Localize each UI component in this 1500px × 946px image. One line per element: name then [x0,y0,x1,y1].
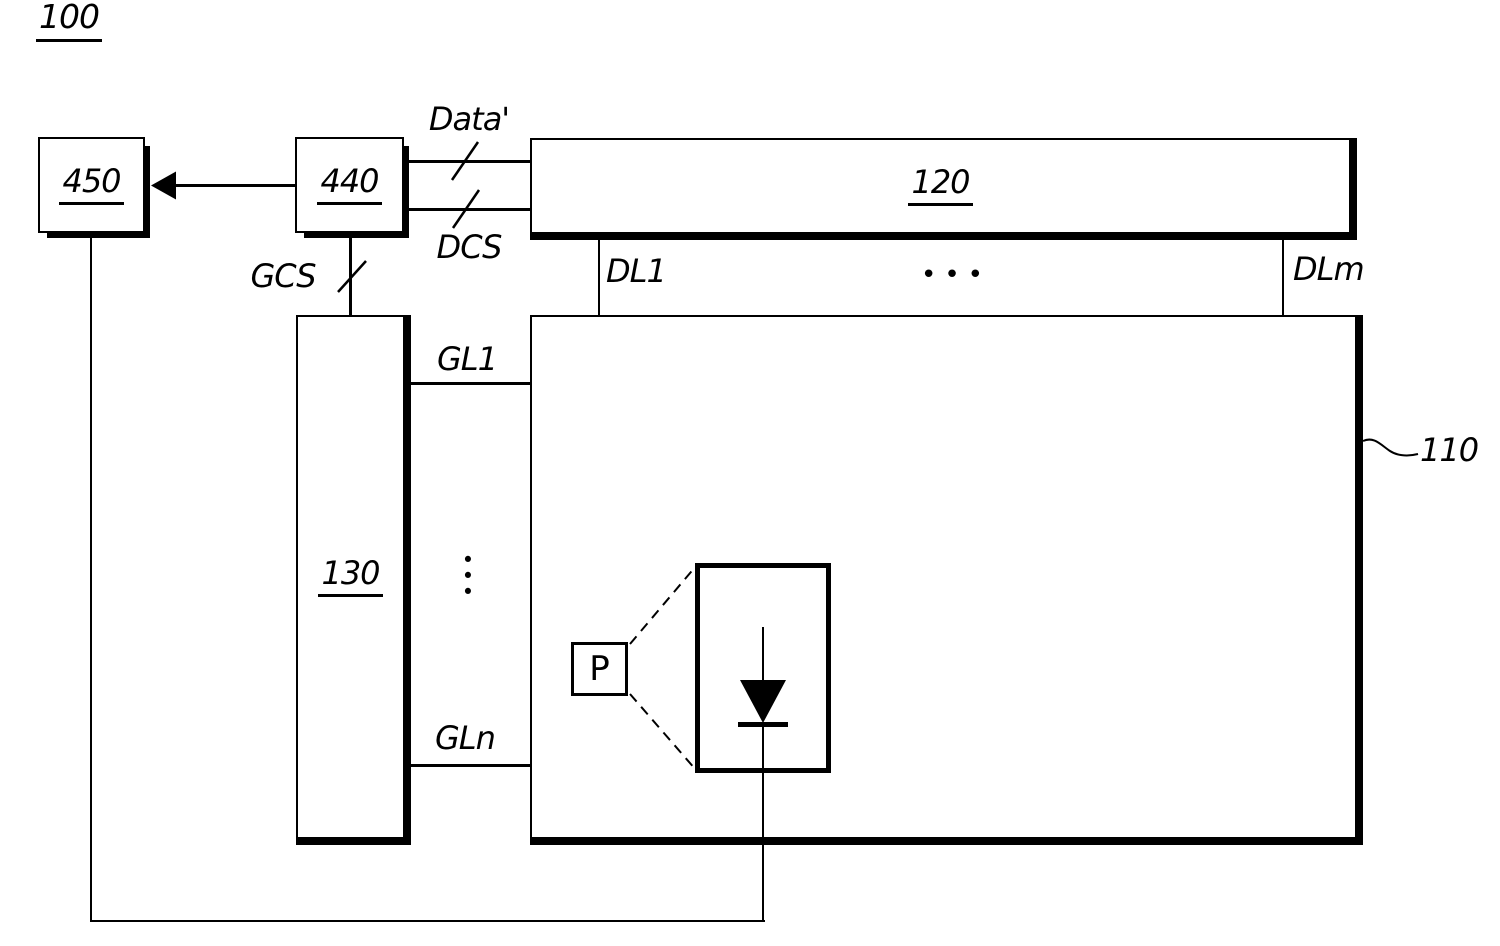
pointer-squiggle-icon [1363,440,1418,456]
data-driver-120-box: 120 [530,138,1357,240]
figure-ref-number: 100 [36,0,102,42]
gcs-signal-label: GCS [233,259,333,294]
gate-driver-130-box: 130 [296,315,411,845]
pixel-cathode-wire [762,724,765,922]
feedback-wire-vertical [90,234,93,922]
diode-anode-stem [762,627,765,683]
data-signal-label: Data' [419,102,519,137]
figure-ref-label: 100 [36,0,102,35]
block-130-label: 130 [318,557,382,597]
vertical-ellipsis: • • • [460,552,476,600]
block-440: 440 [295,137,404,233]
block-450-label: 450 [59,165,123,205]
block-450: 450 [38,137,145,233]
pixel-marker-box: P [571,642,628,696]
dcs-bus-line [404,208,530,211]
feedback-wire-bottom [90,920,765,923]
dcs-signal-label: DCS [419,230,519,265]
arrowhead-icon [151,172,176,200]
data-bus-line [404,160,530,163]
display-panel-110-box [530,315,1363,845]
gln-label: GLn [435,721,495,756]
dl1-line [598,240,601,315]
dlm-line [1282,240,1285,315]
gl1-line [410,382,530,385]
gln-line [410,764,530,767]
dl1-label: DL1 [606,254,666,289]
bus-slash-gcs-icon [338,261,366,292]
panel-110-ref-label: 110 [1420,433,1478,468]
gcs-line [349,234,352,315]
block-120-label: 120 [908,166,972,206]
dlm-label: DLm [1293,252,1364,287]
pixel-marker-label: P [589,652,610,686]
horizontal-ellipsis: ••• [921,262,991,288]
block-440-label: 440 [317,165,381,205]
patent-figure: 100 450 440 120 130 P Data' DCS GCS DL1 … [0,0,1500,946]
gl1-label: GL1 [437,342,497,377]
